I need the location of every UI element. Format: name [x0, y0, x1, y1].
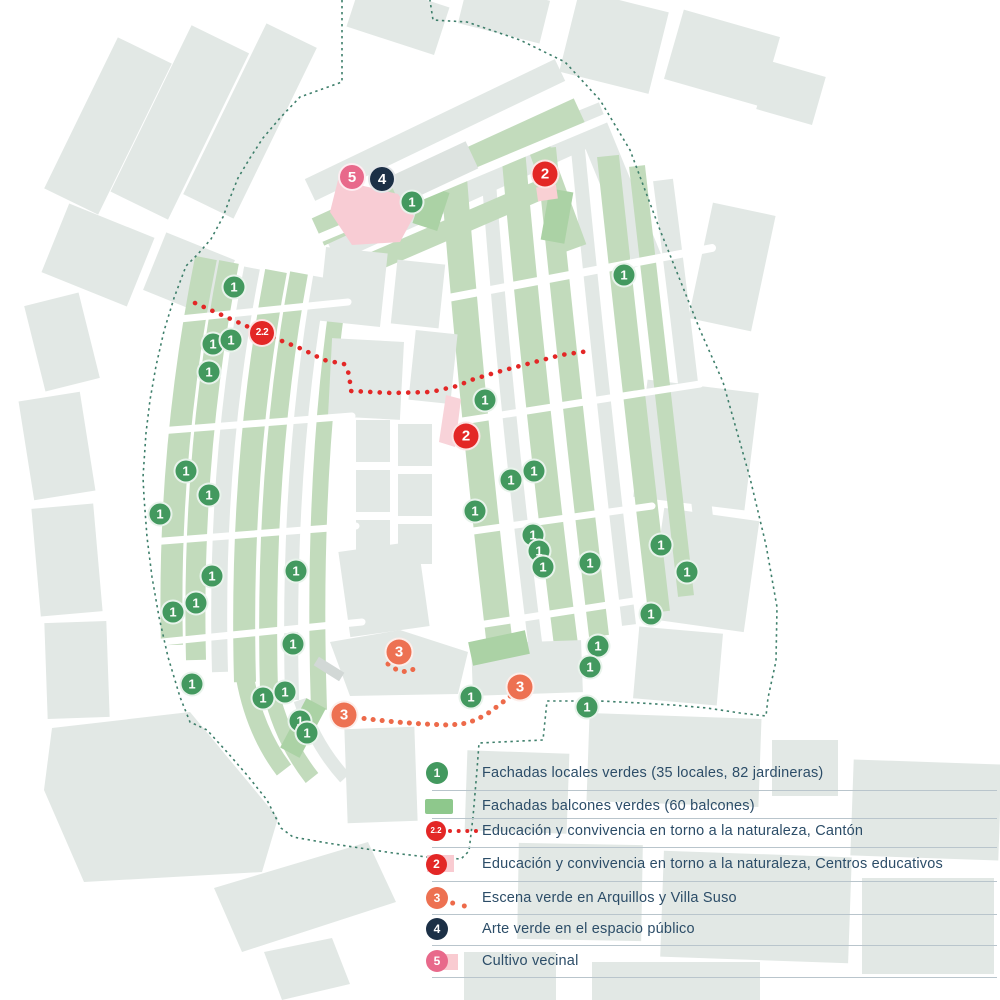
marker-1: 1: [281, 632, 306, 657]
marker-1: 1: [174, 459, 199, 484]
marker-1: 1: [197, 483, 222, 508]
marker-1: 1: [148, 502, 173, 527]
marker-3: 3: [330, 701, 359, 730]
marker-1: 1: [180, 672, 205, 697]
marker-2: 2: [452, 422, 481, 451]
marker-3: 3: [385, 638, 414, 667]
marker-1: 1: [200, 564, 225, 589]
marker-1: 1: [522, 459, 547, 484]
marker-1: 1: [400, 190, 425, 215]
marker-1: 1: [184, 591, 209, 616]
marker-1: 1: [499, 468, 524, 493]
marker-1: 1: [295, 721, 320, 746]
marker-1: 1: [222, 275, 247, 300]
marker-1: 1: [161, 600, 186, 625]
marker-1: 1: [649, 533, 674, 558]
marker-3: 3: [506, 673, 535, 702]
marker-1: 1: [463, 499, 488, 524]
marker-1: 1: [575, 695, 600, 720]
marker-1: 1: [675, 560, 700, 585]
marker-1: 1: [197, 360, 222, 385]
marker-1: 1: [473, 388, 498, 413]
marker-1: 1: [612, 263, 637, 288]
marker-1: 1: [219, 328, 244, 353]
marker-1: 1: [459, 685, 484, 710]
marker-2: 2: [531, 160, 560, 189]
marker-2.2: 2.2: [248, 319, 276, 347]
marker-5: 5: [338, 163, 366, 191]
marker-1: 1: [578, 551, 603, 576]
marker-1: 1: [639, 602, 664, 627]
marker-1: 1: [531, 555, 556, 580]
map-canvas: [0, 0, 1000, 1000]
marker-1: 1: [284, 559, 309, 584]
map-stage: 1111111111111111111111111111111111222.23…: [0, 0, 1000, 1000]
marker-1: 1: [578, 655, 603, 680]
marker-4: 4: [368, 165, 396, 193]
marker-1: 1: [273, 680, 298, 705]
